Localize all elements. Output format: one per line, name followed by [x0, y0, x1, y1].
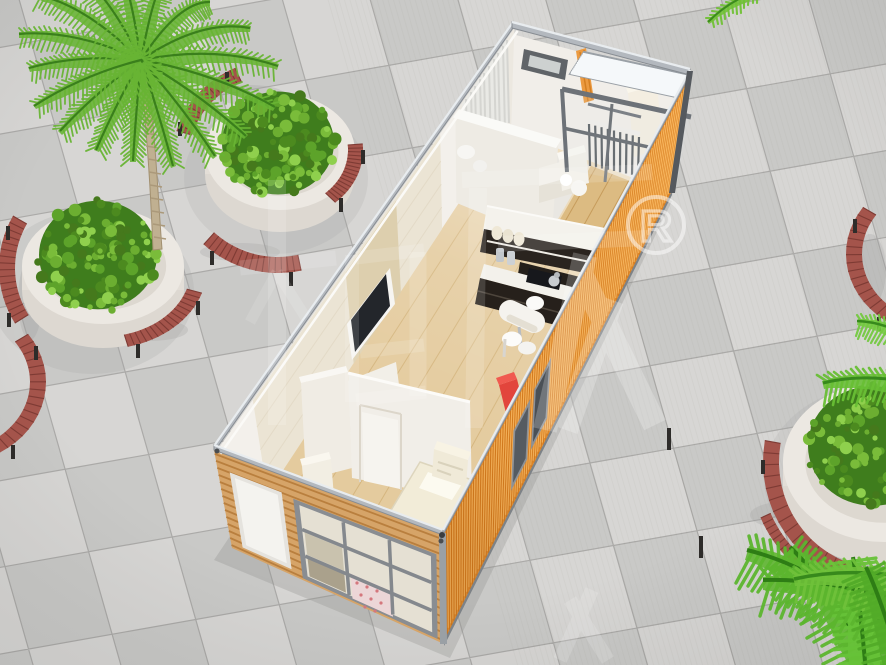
svg-text:R: R: [640, 202, 672, 251]
